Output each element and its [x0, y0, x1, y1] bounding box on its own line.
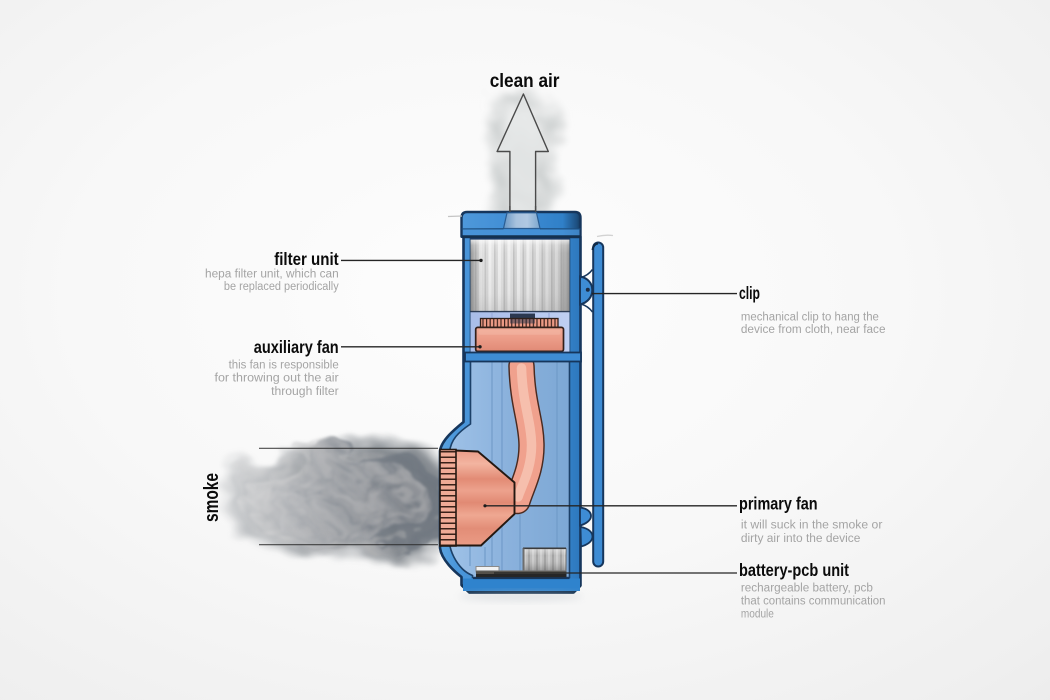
svg-text:rechargeable battery, pcb: rechargeable battery, pcb: [741, 583, 873, 595]
svg-text:clip: clip: [739, 283, 760, 303]
svg-text:battery-pcb unit: battery-pcb unit: [739, 560, 849, 580]
svg-text:dirty air into the device: dirty air into the device: [741, 533, 861, 545]
svg-text:it will suck in the smoke or: it will suck in the smoke or: [741, 520, 883, 532]
svg-text:through filter: through filter: [271, 386, 339, 398]
svg-text:primary fan: primary fan: [739, 494, 818, 514]
svg-text:filter unit: filter unit: [274, 249, 339, 269]
svg-text:be replaced periodically: be replaced periodically: [224, 281, 339, 293]
svg-text:auxiliary fan: auxiliary fan: [254, 337, 339, 357]
svg-text:mechanical clip to hang the: mechanical clip to hang the: [741, 312, 879, 324]
svg-text:this fan is responsible: this fan is responsible: [229, 359, 339, 371]
svg-text:smoke: smoke: [200, 473, 223, 522]
svg-text:for throwing out the air: for throwing out the air: [215, 373, 339, 385]
svg-text:module: module: [741, 609, 774, 621]
svg-text:device from cloth, near face: device from cloth, near face: [741, 324, 886, 336]
svg-text:that contains communication: that contains communication: [741, 596, 886, 608]
svg-text:hepa filter unit, which can: hepa filter unit, which can: [205, 269, 339, 281]
svg-text:clean air: clean air: [490, 71, 560, 92]
